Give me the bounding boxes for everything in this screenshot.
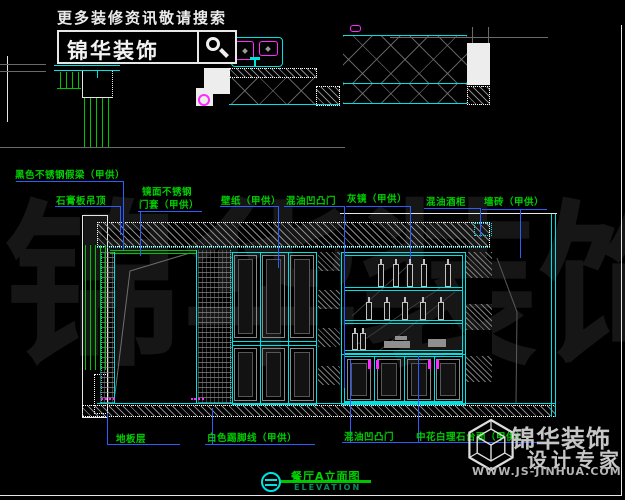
cad-line xyxy=(345,350,462,351)
cad-line xyxy=(97,403,556,404)
bottle-icon xyxy=(421,264,427,287)
cad-line xyxy=(191,398,204,400)
burner-icon xyxy=(198,94,210,106)
fixture-mark xyxy=(350,25,361,32)
teapot-icon xyxy=(395,336,407,340)
cad-line xyxy=(78,72,79,88)
callout-mirror-steel-frame-1: 镜面不锈钢 xyxy=(142,184,192,198)
bottle-icon xyxy=(384,302,390,320)
door-handle xyxy=(368,360,371,369)
bottle-icon xyxy=(445,264,451,287)
cad-drawing-sheet: 锦 华 装 饰 更多装修资讯敬请搜索 锦华装饰 xyxy=(0,0,625,500)
bottle-icon xyxy=(438,302,444,320)
bottle-icon xyxy=(366,302,372,320)
bottle-icon xyxy=(393,264,399,287)
callout-black-steel-beam: 黑色不锈钢假梁（甲供） xyxy=(15,167,125,181)
callout-wine-cabinet: 混油酒柜 xyxy=(426,194,466,208)
cad-line xyxy=(232,345,317,346)
callout-white-skirting: 白色踢脚线（甲供） xyxy=(207,430,297,444)
cad-line xyxy=(374,356,375,403)
bottle-icon xyxy=(407,264,413,287)
callout-gypsum-ceiling: 石膏板吊顶 xyxy=(56,193,106,207)
section-circle-icon xyxy=(261,472,281,492)
cad-line xyxy=(0,147,345,148)
leader-line xyxy=(482,209,547,210)
cad-line xyxy=(96,98,97,147)
teapot-icon xyxy=(428,339,446,347)
bottle-icon xyxy=(402,302,408,320)
leader-line xyxy=(205,444,315,445)
callout-grey-mirror: 灰镜（甲供） xyxy=(347,191,407,205)
cad-line xyxy=(90,98,91,147)
cad-line xyxy=(551,214,552,417)
cad-line xyxy=(85,245,86,370)
leader-line xyxy=(480,208,481,237)
cad-line xyxy=(390,37,548,38)
cad-line xyxy=(72,72,73,88)
cad-line xyxy=(345,323,462,324)
callout-paint-relief-door-bottom: 混油凹凸门 xyxy=(344,429,394,443)
cad-line xyxy=(341,354,466,355)
leader-line xyxy=(16,181,124,182)
header-tagline: 更多装修资讯敬请搜索 xyxy=(57,7,227,28)
callout-paint-relief-door: 混油凹凸门 xyxy=(286,193,336,207)
callout-wallpaper: 壁纸（甲供） xyxy=(221,193,281,207)
leader-line xyxy=(424,208,481,209)
cad-line xyxy=(343,83,467,84)
cad-line xyxy=(340,213,557,214)
cad-line xyxy=(345,290,462,291)
cad-line xyxy=(404,356,405,403)
cad-line xyxy=(288,252,289,405)
leader-line xyxy=(120,206,121,235)
cad-line xyxy=(232,341,317,342)
section-stripe xyxy=(265,479,277,481)
cad-line xyxy=(345,320,462,321)
cad-line xyxy=(472,27,473,43)
section-stripe xyxy=(265,484,277,486)
cad-line xyxy=(114,252,115,403)
leader-line xyxy=(278,206,279,268)
drawing-title: 餐厅A立面图 xyxy=(291,468,361,484)
door-handle xyxy=(376,360,379,369)
leader-line xyxy=(107,413,108,444)
cad-line xyxy=(110,250,197,251)
faucet-icon xyxy=(254,60,256,67)
door-handle xyxy=(436,360,439,369)
cad-line xyxy=(343,35,467,36)
cad-line xyxy=(101,398,115,400)
cad-line xyxy=(66,72,67,88)
brand-text: 锦华装饰 xyxy=(67,35,159,65)
cad-line xyxy=(260,252,261,405)
cad-line xyxy=(621,25,622,496)
cad-line xyxy=(105,245,106,370)
cad-line xyxy=(54,65,120,66)
cad-line xyxy=(229,104,340,105)
cad-line xyxy=(97,247,490,248)
cad-line xyxy=(60,72,61,88)
divider xyxy=(197,32,199,62)
cad-line xyxy=(0,64,46,65)
bottle-icon xyxy=(352,333,358,350)
cad-line xyxy=(54,70,120,71)
cad-line xyxy=(230,250,231,403)
leader-line xyxy=(344,206,345,388)
cad-line xyxy=(110,253,197,254)
cad-line xyxy=(0,495,622,496)
cad-line xyxy=(101,252,102,403)
footer-website: WWW.JS-JINHUA.COM xyxy=(472,465,622,478)
cad-line xyxy=(57,88,81,89)
teapot-icon xyxy=(384,341,410,348)
leader-line xyxy=(520,209,521,258)
door-handle xyxy=(428,360,431,369)
callout-wall-tile: 墙砖（甲供） xyxy=(484,194,544,208)
cad-line xyxy=(84,98,85,147)
bottle-icon xyxy=(360,333,366,350)
cad-line xyxy=(7,56,8,122)
cad-line xyxy=(345,287,462,288)
cad-line xyxy=(90,245,91,370)
leader-line xyxy=(140,211,141,256)
search-icon-handle xyxy=(219,48,229,58)
cad-line xyxy=(196,250,197,403)
cad-line xyxy=(434,356,435,403)
callout-floor-layer: 地板层 xyxy=(116,431,146,445)
cad-line xyxy=(95,245,96,370)
cad-line xyxy=(102,98,103,147)
wireframe-cube-icon xyxy=(465,418,517,472)
cad-line xyxy=(108,98,109,147)
drawing-subtitle: ELEVATION xyxy=(294,483,361,492)
cad-line xyxy=(345,353,462,354)
bottle-icon xyxy=(420,302,426,320)
search-box[interactable]: 锦华装饰 xyxy=(57,30,237,64)
leader-line xyxy=(138,211,202,212)
cad-line xyxy=(488,27,489,43)
search-icon[interactable] xyxy=(206,37,220,51)
leader-line xyxy=(346,206,411,207)
cad-line xyxy=(97,70,98,78)
callout-mirror-steel-frame-2: 门套（甲供） xyxy=(139,197,199,211)
leader-line xyxy=(123,181,124,250)
bottle-icon xyxy=(378,264,384,287)
cad-line xyxy=(555,214,556,417)
cad-line xyxy=(100,245,101,370)
cad-line xyxy=(343,103,467,104)
cad-line xyxy=(0,71,46,72)
